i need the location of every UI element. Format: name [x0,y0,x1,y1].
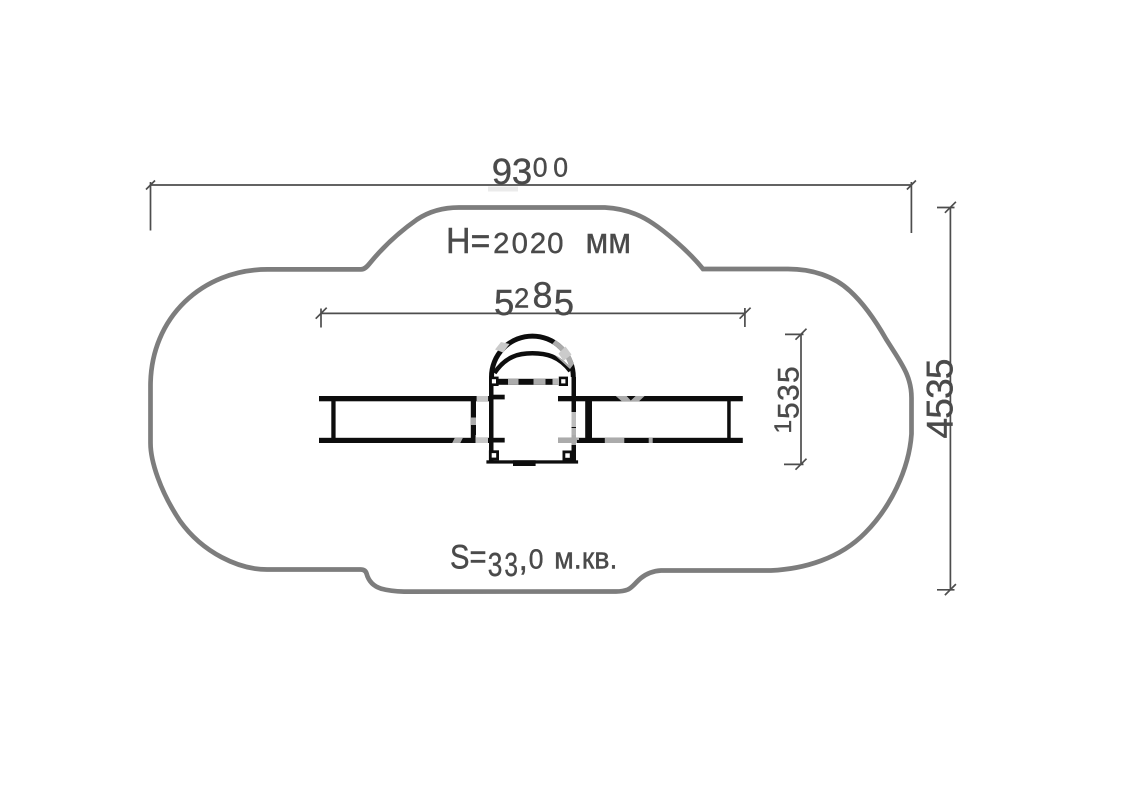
svg-text:3: 3 [773,384,806,401]
svg-text:S=: S= [450,539,487,577]
svg-text:5: 5 [494,282,514,323]
svg-text:мм: мм [586,220,632,261]
svg-text:0: 0 [512,228,528,260]
svg-text:9: 9 [492,151,512,192]
svg-text:0: 0 [553,153,568,183]
svg-text:H=: H= [446,220,490,261]
svg-text:м.кв.: м.кв. [554,541,617,576]
svg-text:2: 2 [530,228,546,260]
svg-text:5: 5 [919,359,960,380]
svg-text:2: 2 [514,283,529,314]
svg-text:8: 8 [533,275,553,316]
svg-text:3: 3 [488,547,503,584]
svg-text:5: 5 [773,402,806,419]
svg-text:3: 3 [504,547,518,584]
svg-text:3: 3 [512,151,532,192]
svg-text:0: 0 [547,228,563,260]
svg-text:1: 1 [770,420,797,434]
svg-text:4: 4 [919,418,960,439]
svg-text:5: 5 [773,366,806,383]
svg-text:3: 3 [919,378,960,399]
svg-text:0: 0 [533,153,548,183]
svg-text:0: 0 [529,544,544,575]
svg-text:5: 5 [554,282,574,323]
svg-text:,: , [519,540,528,578]
svg-text:2: 2 [493,228,509,260]
svg-text:5: 5 [919,398,960,419]
